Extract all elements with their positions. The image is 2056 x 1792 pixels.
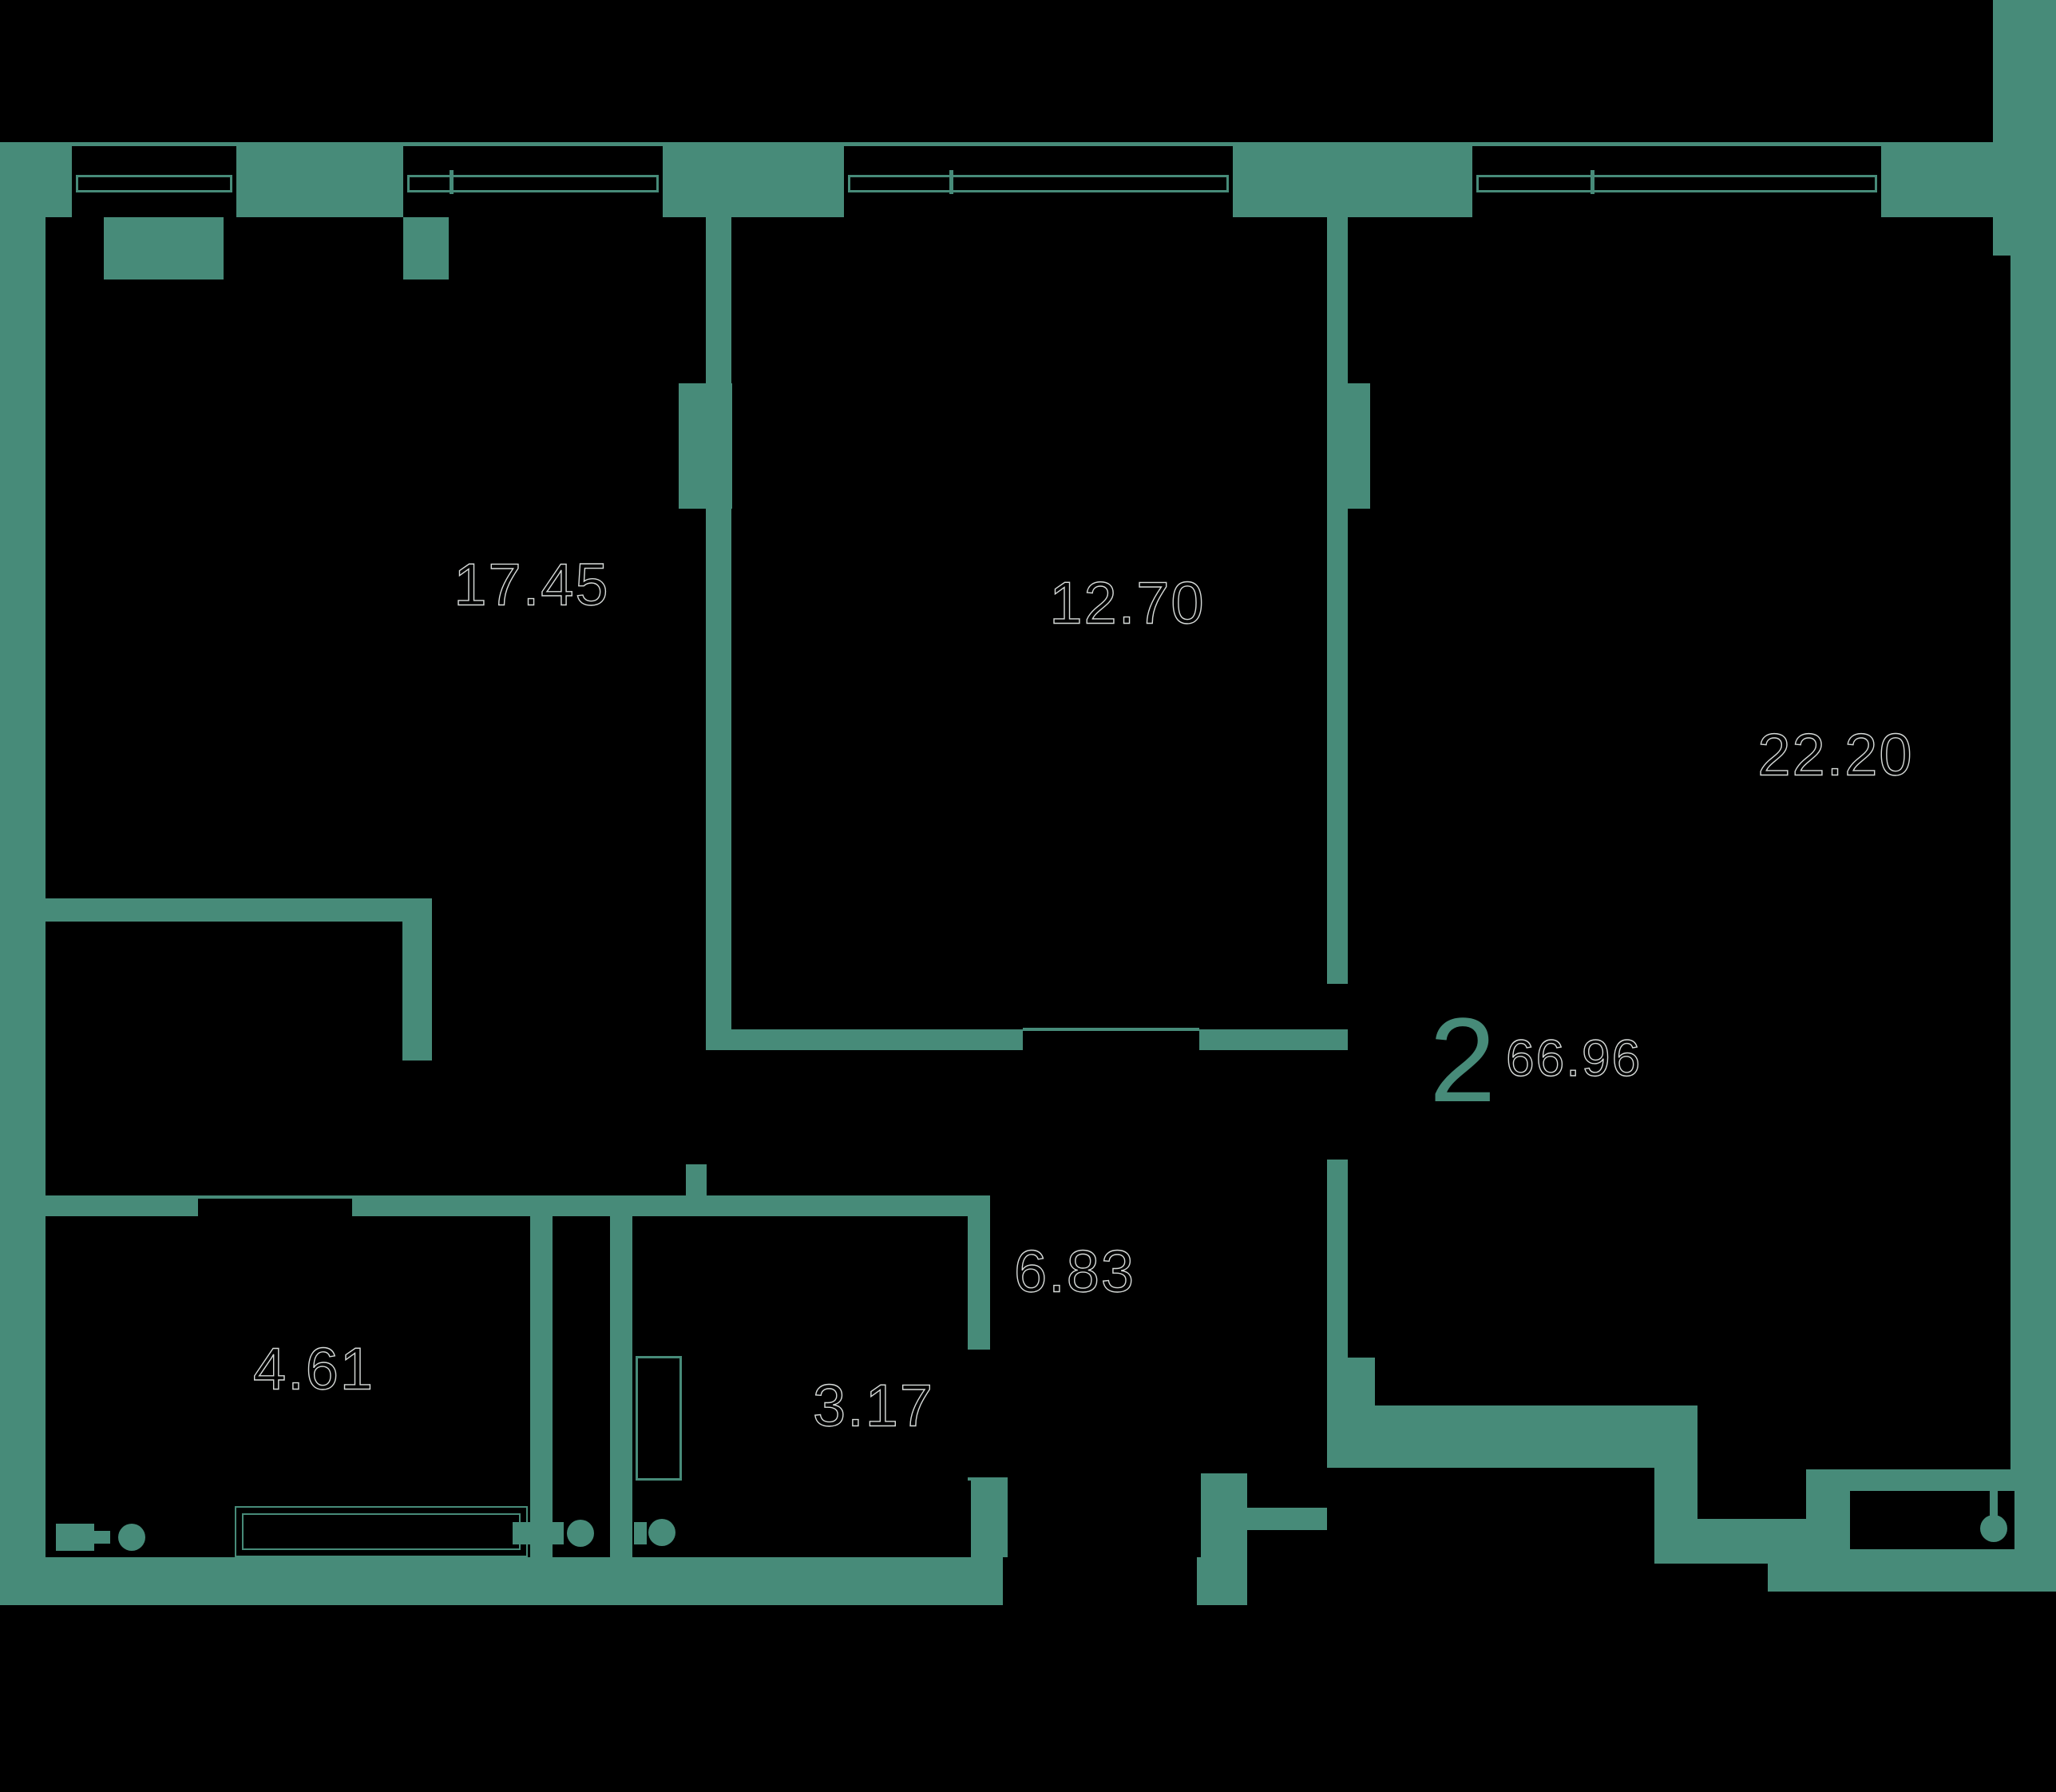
wall-bottom-exterior (0, 1557, 999, 1605)
window-4 (1472, 146, 1881, 217)
door-jamb-room2-left (1020, 1029, 1023, 1050)
room-area-label-room2: 12.70 (1049, 569, 1205, 637)
wall-room2-living-foot (1327, 1358, 1375, 1405)
pier-room2-living (1327, 383, 1370, 509)
wall-room2-living-upper (1327, 217, 1348, 984)
room-area-label-living: 22.20 (1757, 721, 1913, 789)
window-3 (844, 146, 1233, 217)
drain-icon-stem (1990, 1491, 1998, 1516)
total-area-label: 66.96 (1506, 1029, 1642, 1088)
toilet-icon-bowl (118, 1524, 145, 1551)
wall-wc-right-pier (971, 1477, 1008, 1557)
wall-stub-window-2 (403, 217, 449, 280)
window-1 (72, 146, 236, 217)
window-icon (848, 175, 1229, 192)
window-icon (76, 175, 232, 192)
room-area-label-room1: 17.45 (454, 551, 609, 619)
wall-room2-bottom-left (731, 1029, 1023, 1050)
wall-bath-top-left (46, 1195, 198, 1216)
wall-stub-corridor (686, 1164, 707, 1195)
room-area-label-bath: 4.61 (253, 1335, 374, 1403)
window-icon (407, 175, 659, 192)
toilet-icon-tank (56, 1524, 94, 1551)
door-jamb-wc-top (968, 1346, 990, 1350)
toilet-icon-bar (94, 1531, 110, 1544)
wall-wc-right-upper (968, 1216, 990, 1350)
wall-hall-bottom-connector (1247, 1508, 1327, 1530)
radiator-icon (104, 217, 224, 280)
wall-right-exterior (2010, 256, 2056, 1469)
room-area-label-hall: 6.83 (1014, 1238, 1135, 1306)
wall-shaft-wc-right (610, 1216, 632, 1557)
window-icon (1476, 175, 1877, 192)
wall-bath-shaft-left (530, 1216, 553, 1557)
window-divider (949, 170, 953, 194)
wall-room2-bottom-right (1199, 1029, 1348, 1050)
floor-plan: 17.45 12.70 22.20 4.61 3.17 6.83 2 66.96 (0, 0, 2056, 1792)
wc-toilet-icon-bowl (648, 1519, 675, 1546)
bathtub-icon-inner (242, 1513, 521, 1550)
door-lintel-room2 (1023, 1028, 1199, 1031)
wall-step-b-vertical (1768, 1564, 1811, 1592)
door-jamb-living-top (1327, 981, 1348, 984)
door-jamb-room2-right (1199, 1029, 1202, 1050)
wall-step-a (1327, 1405, 1697, 1468)
wall-room1-pier-down (402, 922, 432, 1061)
wall-left-exterior (0, 142, 46, 1605)
wall-room2-living-lower (1327, 1160, 1348, 1358)
room-area-label-wc: 3.17 (813, 1372, 934, 1440)
window-divider (450, 170, 454, 194)
drain-icon (1980, 1515, 2007, 1542)
wc-toilet-icon-tank (634, 1522, 647, 1544)
pipe-riser-icon-bar (513, 1522, 564, 1544)
wall-step-b (1654, 1519, 1811, 1564)
door-jamb-bath-right (352, 1195, 355, 1216)
wall-top-right-block (1993, 0, 2056, 256)
washing-machine-icon (636, 1356, 682, 1481)
wall-room1-room2 (706, 217, 731, 1050)
wall-entrance-right (1201, 1473, 1247, 1605)
door-jamb-bath-left (195, 1195, 198, 1216)
rooms-count-label: 2 (1429, 1000, 1495, 1120)
wall-room1-bottom (46, 898, 432, 922)
door-jamb-entrance-left (999, 1557, 1003, 1605)
pipe-riser-icon (567, 1520, 594, 1547)
wall-bath-top-right (353, 1195, 990, 1216)
door-lintel-bath (198, 1195, 352, 1199)
window-2 (403, 146, 663, 217)
window-divider (1591, 170, 1594, 194)
door-jamb-living-bottom (1327, 1160, 1348, 1163)
door-jamb-wc-bottom (968, 1477, 990, 1481)
pier-room1-room2 (679, 383, 732, 509)
